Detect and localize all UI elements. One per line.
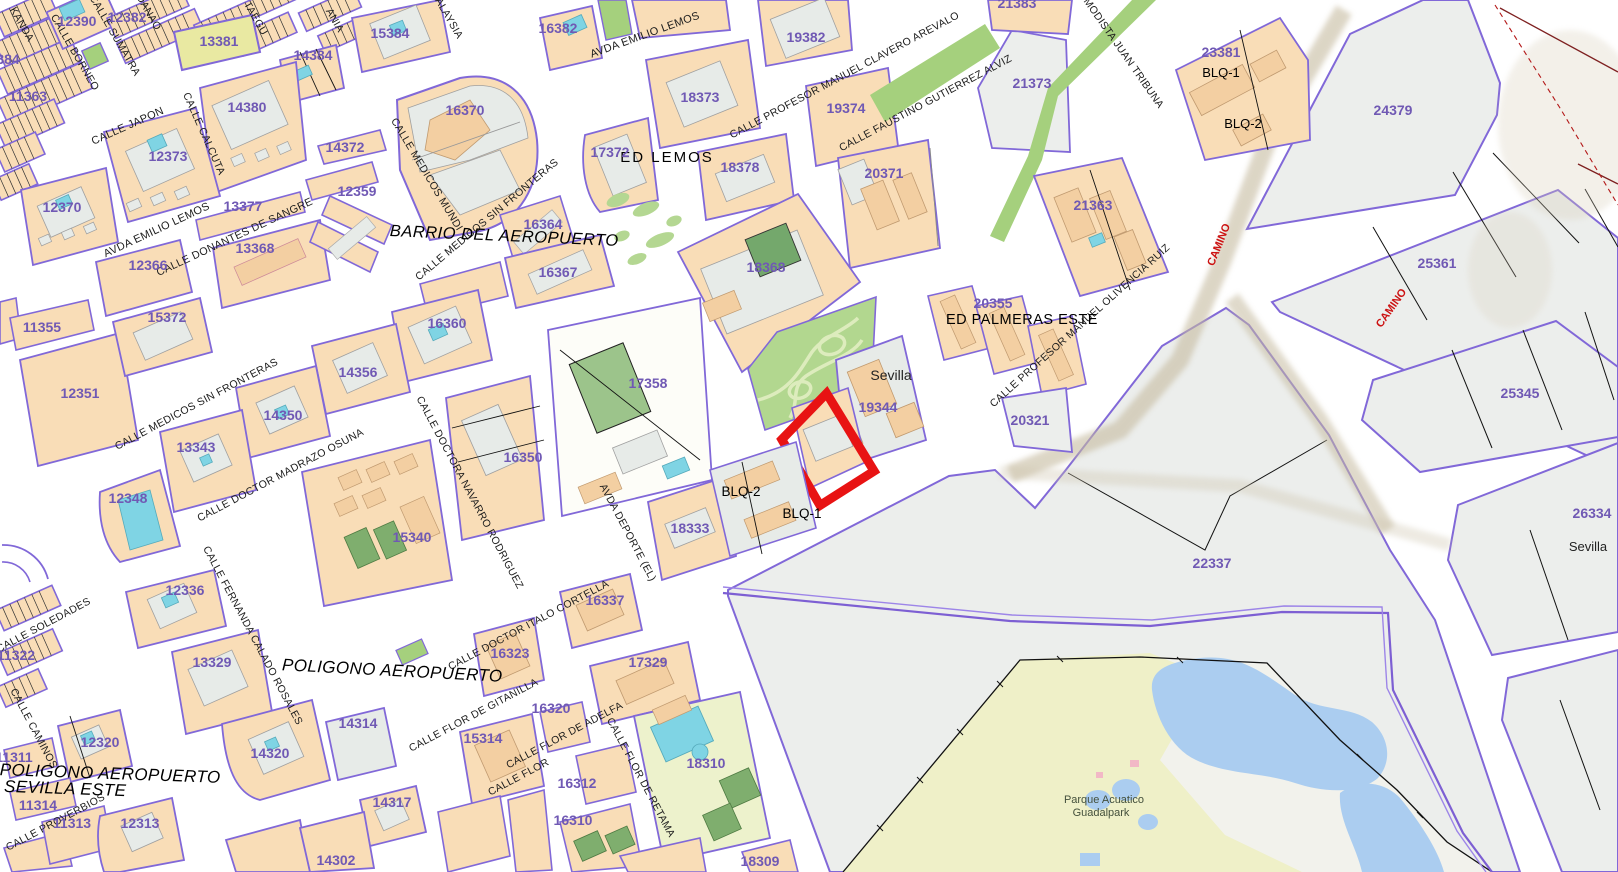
svg-text:12351: 12351	[61, 385, 100, 401]
svg-text:14356: 14356	[339, 364, 378, 380]
svg-text:21373: 21373	[1013, 75, 1052, 91]
svg-text:13343: 13343	[177, 439, 216, 455]
svg-text:16350: 16350	[504, 449, 543, 465]
svg-text:11311: 11311	[0, 749, 33, 765]
svg-text:12370: 12370	[43, 199, 82, 215]
svg-text:16312: 16312	[558, 775, 597, 791]
svg-text:16382: 16382	[539, 20, 578, 36]
svg-text:14350: 14350	[264, 407, 303, 423]
svg-text:13368: 13368	[236, 240, 275, 256]
svg-text:17372: 17372	[591, 144, 630, 160]
svg-text:12366: 12366	[129, 257, 168, 273]
svg-text:18333: 18333	[671, 520, 710, 536]
svg-text:11314: 11314	[19, 797, 57, 813]
svg-text:16310: 16310	[554, 812, 593, 828]
svg-text:Sevilla: Sevilla	[1569, 539, 1608, 554]
svg-text:16364: 16364	[524, 216, 563, 232]
svg-text:25361: 25361	[1418, 255, 1457, 271]
svg-text:13329: 13329	[193, 654, 232, 670]
svg-text:14372: 14372	[326, 139, 365, 155]
svg-text:13381: 13381	[200, 33, 239, 49]
svg-text:11313: 11313	[53, 815, 91, 831]
svg-text:25345: 25345	[1501, 385, 1540, 401]
svg-text:12313: 12313	[121, 815, 160, 831]
svg-text:16367: 16367	[539, 264, 578, 280]
svg-text:BLQ-1: BLQ-1	[782, 506, 821, 521]
svg-text:20371: 20371	[865, 165, 904, 181]
svg-text:14317: 14317	[373, 794, 412, 810]
svg-text:15372: 15372	[148, 309, 187, 325]
svg-text:21363: 21363	[1074, 197, 1113, 213]
svg-text:14320: 14320	[251, 745, 290, 761]
svg-text:15340: 15340	[393, 529, 432, 545]
svg-text:12359: 12359	[338, 183, 377, 199]
svg-text:16323: 16323	[491, 645, 530, 661]
svg-text:16320: 16320	[532, 700, 571, 716]
svg-text:ED PALMERAS ESTE: ED PALMERAS ESTE	[946, 312, 1098, 328]
svg-text:BLQ-2: BLQ-2	[1224, 116, 1262, 131]
svg-text:16337: 16337	[586, 592, 625, 608]
svg-text:17329: 17329	[629, 654, 668, 670]
svg-text:23381: 23381	[1202, 44, 1241, 60]
svg-text:Parque Acuatico: Parque Acuatico	[1064, 794, 1144, 806]
svg-text:26334: 26334	[1573, 505, 1612, 521]
svg-text:17358: 17358	[629, 375, 668, 391]
svg-text:12320: 12320	[81, 734, 120, 750]
svg-text:ED LEMOS: ED LEMOS	[620, 149, 714, 166]
svg-text:20355: 20355	[974, 295, 1013, 311]
svg-text:BLQ-1: BLQ-1	[1202, 65, 1240, 80]
svg-text:18378: 18378	[721, 159, 760, 175]
svg-text:12373: 12373	[149, 148, 188, 164]
svg-text:12382: 12382	[108, 9, 147, 25]
svg-text:11363: 11363	[9, 88, 47, 104]
svg-text:Guadalpark: Guadalpark	[1073, 807, 1130, 819]
svg-text:18310: 18310	[687, 755, 726, 771]
svg-text:11322: 11322	[0, 647, 35, 663]
svg-text:16360: 16360	[428, 315, 467, 331]
svg-text:20321: 20321	[1011, 412, 1050, 428]
svg-text:18373: 18373	[681, 89, 720, 105]
svg-text:22337: 22337	[1193, 555, 1232, 571]
svg-text:13377: 13377	[224, 198, 263, 214]
svg-text:15384: 15384	[371, 25, 410, 41]
svg-text:18368: 18368	[747, 259, 786, 275]
svg-text:12348: 12348	[109, 490, 148, 506]
svg-text:19344: 19344	[859, 399, 898, 415]
svg-text:11355: 11355	[23, 319, 61, 335]
svg-text:15314: 15314	[464, 730, 503, 746]
svg-text:BLQ-2: BLQ-2	[721, 484, 760, 499]
svg-text:12336: 12336	[166, 582, 205, 598]
svg-text:19382: 19382	[787, 29, 826, 45]
svg-text:Sevilla: Sevilla	[870, 367, 911, 383]
svg-text:16370: 16370	[446, 102, 485, 118]
svg-text:14302: 14302	[317, 852, 356, 868]
svg-text:14384: 14384	[294, 47, 333, 63]
svg-text:12390: 12390	[58, 13, 97, 29]
svg-text:18309: 18309	[741, 853, 780, 869]
svg-text:19374: 19374	[827, 100, 866, 116]
svg-text:14314: 14314	[339, 715, 378, 731]
svg-text:21383: 21383	[998, 0, 1037, 11]
svg-text:24379: 24379	[1374, 102, 1413, 118]
svg-text:14380: 14380	[228, 99, 267, 115]
svg-text:384: 384	[0, 51, 20, 67]
